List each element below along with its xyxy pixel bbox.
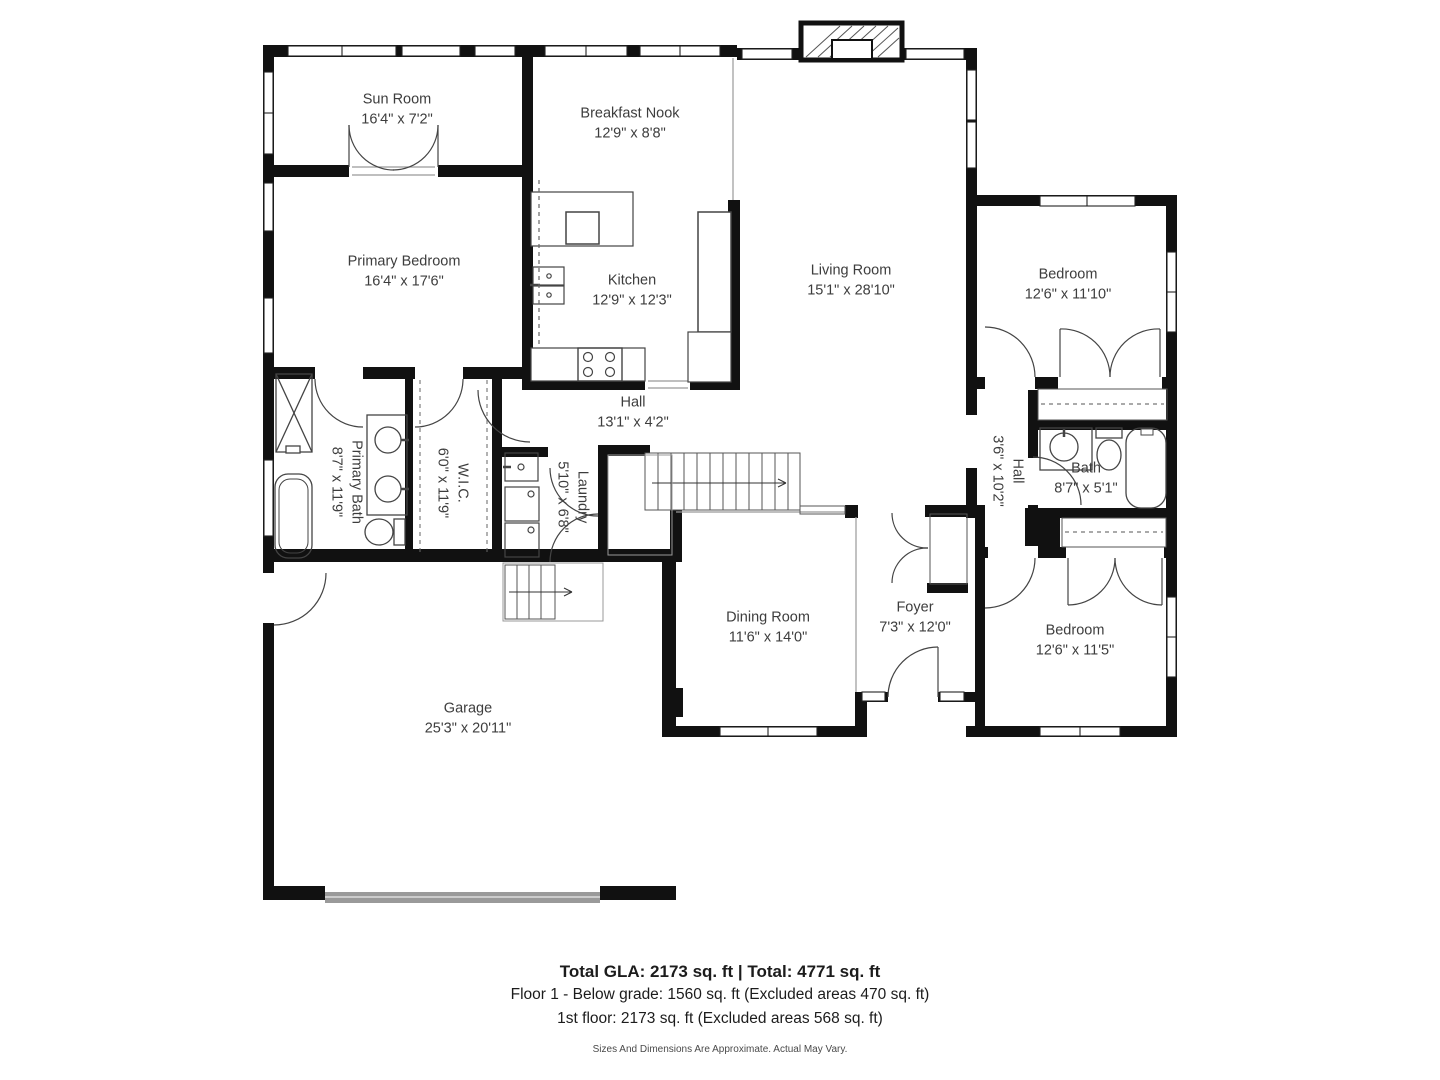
room-label-primary-bedroom: Primary Bedroom 16'4" x 17'6" [348,252,461,293]
room-label-foyer: Foyer 7'3" x 12'0" [879,598,950,639]
room-dims: 3'6" x 10'2" [987,435,1007,506]
primary-bath-door [315,379,363,427]
room-name: Bedroom [1036,621,1114,641]
room-label-primary-bath: Primary Bath 8'7" x 11'9" [326,440,367,524]
floor-1-text: Floor 1 - Below grade: 1560 sq. ft (Excl… [0,986,1440,1004]
refrigerator [698,212,731,332]
room-dims: 12'9" x 8'8" [580,124,679,144]
foyer-closet [930,514,967,584]
room-label-breakfast-nook: Breakfast Nook 12'9" x 8'8" [580,104,679,145]
toilet [365,519,405,545]
room-dims: 13'1" x 4'2" [597,413,668,433]
room-label-bedroom-2: Bedroom 12'6" x 11'5" [1036,621,1114,662]
bedroom1-closet-doors [1060,329,1160,377]
front-door [888,647,938,697]
room-dims: 7'3" x 12'0" [879,618,950,638]
room-dims: 11'6" x 14'0" [726,628,810,648]
washer-dryer [505,487,539,557]
room-label-sun-room: Sun Room 16'4" x 7'2" [361,90,432,131]
vanity-sinks [367,415,409,515]
laundry-sink [503,453,538,481]
room-name: Laundry [572,461,592,532]
room-name: Sun Room [361,90,432,110]
room-dims: 25'3" x 20'11" [425,719,512,739]
room-label-wic: W.I.C. 6'0" x 11'9" [432,448,473,518]
room-label-dining-room: Dining Room 11'6" x 14'0" [726,608,810,649]
room-name: Bath [1054,459,1117,479]
room-name: Primary Bedroom [348,252,461,272]
wic-door [415,379,463,427]
room-dims: 8'7" x 5'1" [1054,479,1117,499]
room-name: Hall [1007,435,1027,506]
room-name: Living Room [807,261,895,281]
room-dims: 5'10" x 6'8" [552,461,572,532]
kitchen-cabinet-right [688,332,731,382]
room-label-bedroom-1: Bedroom 12'6" x 11'10" [1025,265,1112,306]
fireplace [801,23,902,60]
room-dims: 16'4" x 17'6" [348,272,461,292]
room-name: Breakfast Nook [580,104,679,124]
primary-bedroom-door [478,390,530,442]
bedroom2-door [985,558,1035,608]
garage-door [325,892,600,903]
room-dims: 12'9" x 12'3" [592,291,672,311]
room-name: Foyer [879,598,950,618]
room-label-bath: Bath 8'7" x 5'1" [1054,459,1117,500]
stairs-basement [503,563,603,621]
room-dims: 12'6" x 11'10" [1025,285,1112,305]
room-dims: 15'1" x 28'10" [807,281,895,301]
kitchen-sink [530,267,564,304]
room-name: Hall [597,393,668,413]
room-label-garage: Garage 25'3" x 20'11" [425,699,512,740]
room-name: Garage [425,699,512,719]
room-label-laundry: Laundry 5'10" x 6'8" [552,461,593,532]
total-gla-text: Total GLA: 2173 sq. ft | Total: 4771 sq.… [0,962,1440,982]
floor-plan-page: Sun Room 16'4" x 7'2" Breakfast Nook 12'… [0,0,1440,1080]
room-dims: 12'6" x 11'5" [1036,641,1114,661]
shower [276,374,312,453]
room-dims: 16'4" x 7'2" [361,110,432,130]
room-name: W.I.C. [452,448,472,518]
foyer-closet-doors [892,513,928,583]
room-label-living-room: Living Room 15'1" x 28'10" [807,261,895,302]
bathtub [275,474,312,558]
bedroom2-closet-doors [1068,558,1162,605]
stairs-up [608,453,845,555]
room-name: Primary Bath [346,440,366,524]
room-label-hall-center: Hall 13'1" x 4'2" [597,393,668,434]
room-name: Bedroom [1025,265,1112,285]
french-doors [349,125,438,170]
room-label-hall-right: Hall 3'6" x 10'2" [987,435,1028,506]
room-dims: 6'0" x 11'9" [432,448,452,518]
garage-side-door [274,573,326,625]
bath-tub [1126,428,1166,508]
kitchen-counter-top [531,192,633,246]
first-floor-text: 1st floor: 2173 sq. ft (Excluded areas 5… [0,1010,1440,1028]
room-label-kitchen: Kitchen 12'9" x 12'3" [592,271,672,312]
floor-plan-drawing [0,0,1440,1080]
footer: Total GLA: 2173 sq. ft | Total: 4771 sq.… [0,962,1440,1065]
bedroom1-door [985,327,1035,377]
room-name: Dining Room [726,608,810,628]
laundry-fixtures [503,453,539,557]
room-name: Kitchen [592,271,672,291]
room-dims: 8'7" x 11'9" [326,440,346,524]
disclaimer-text: Sizes And Dimensions Are Approximate. Ac… [0,1044,1440,1055]
